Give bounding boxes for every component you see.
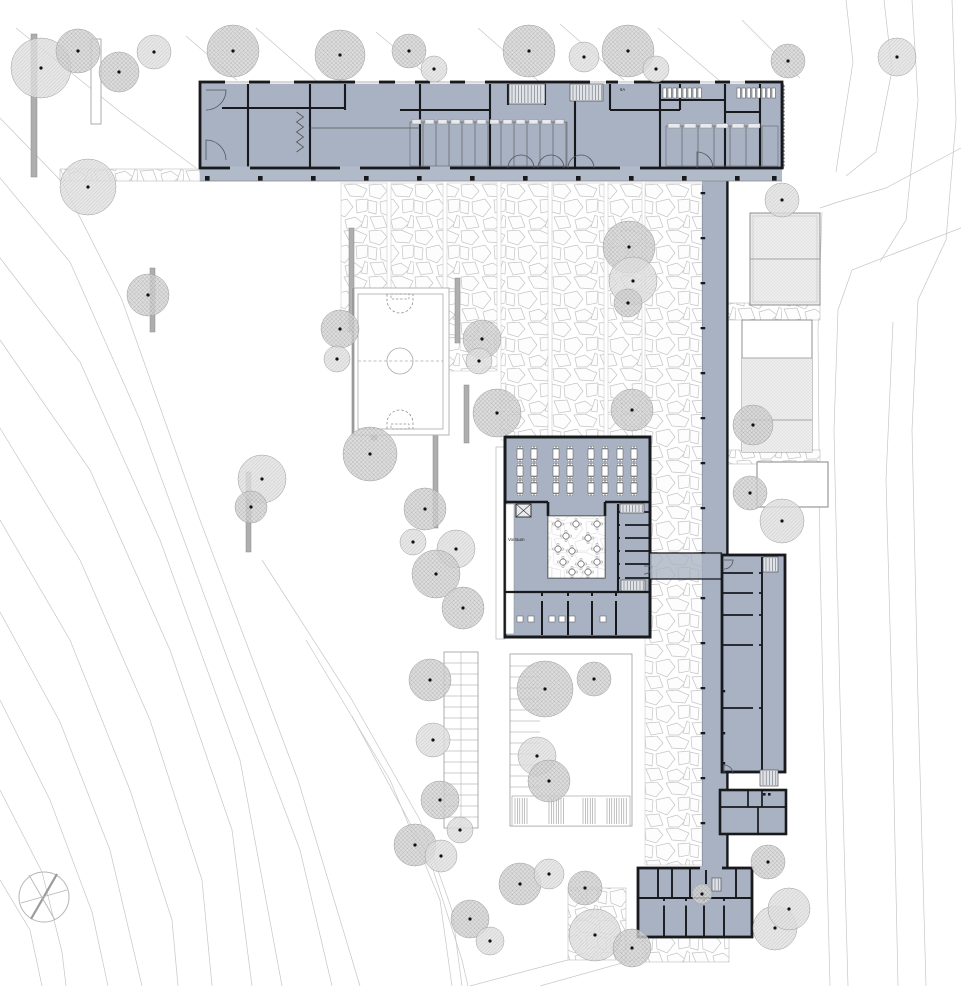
vorraum-corridor: [506, 504, 514, 634]
chair: [596, 544, 598, 546]
tree-trunk-dot: [626, 49, 629, 52]
locker-cap: [555, 120, 564, 125]
contour-line: [262, 560, 462, 986]
chair: [561, 535, 563, 537]
chair: [617, 460, 619, 462]
tree-trunk-dot: [454, 547, 457, 550]
veranda-post: [682, 176, 687, 181]
chair: [534, 494, 536, 496]
bridge-link: [650, 553, 722, 579]
corridor-post: [701, 372, 706, 374]
dining-table: [588, 466, 594, 476]
tree-trunk-dot: [547, 779, 550, 782]
locker-cap: [700, 124, 712, 129]
tree-trunk-dot: [439, 854, 442, 857]
chair: [553, 494, 555, 496]
round-table: [555, 546, 561, 552]
chair: [617, 446, 619, 448]
dining-table: [631, 466, 637, 476]
tree-trunk-dot: [488, 939, 491, 942]
dining-table: [531, 449, 537, 459]
chair: [571, 554, 573, 556]
door-gap: [541, 596, 543, 601]
chair: [520, 463, 522, 465]
locker-cap: [529, 120, 538, 125]
contour-line: [0, 258, 282, 986]
dining-table: [588, 449, 594, 459]
wall-nub: [721, 690, 725, 692]
steps-strip: [512, 796, 630, 826]
chair: [520, 477, 522, 479]
wc-fixture: [752, 88, 755, 98]
contour-line: [818, 212, 830, 986]
wall-nub: [721, 762, 725, 764]
veranda-post: [735, 176, 740, 181]
chair: [561, 548, 563, 550]
locker-cap: [477, 120, 486, 125]
chair: [556, 460, 558, 462]
chair: [531, 477, 533, 479]
tree-trunk-dot: [249, 505, 252, 508]
chair: [596, 519, 598, 521]
corridor-post: [701, 462, 706, 464]
tree-trunk-dot: [146, 293, 149, 296]
chair: [557, 519, 559, 521]
corridor-post: [701, 192, 706, 194]
chair: [588, 446, 590, 448]
door-gap: [685, 901, 687, 906]
dining-table: [531, 483, 537, 493]
chair: [567, 463, 569, 465]
chair: [634, 463, 636, 465]
corridor-post: [701, 237, 706, 239]
tree-trunk-dot: [527, 49, 530, 52]
chair: [575, 550, 577, 552]
chair: [557, 527, 559, 529]
chair: [605, 446, 607, 448]
chair: [634, 480, 636, 482]
chair: [602, 477, 604, 479]
tree-trunk-dot: [495, 411, 498, 414]
locker-cap: [451, 120, 460, 125]
east-annex: [720, 790, 786, 834]
chair: [602, 480, 604, 482]
chair: [570, 480, 572, 482]
chair: [534, 446, 536, 448]
basketball-court: [352, 288, 449, 435]
chair: [570, 460, 572, 462]
tree-trunk-dot: [773, 926, 776, 929]
corridor-post: [701, 732, 706, 734]
chair: [602, 494, 604, 496]
wc-fixture: [757, 88, 760, 98]
chair: [571, 523, 573, 525]
wall-nub: [721, 732, 725, 734]
corridor-post: [701, 822, 706, 824]
contour-line: [0, 428, 212, 986]
chair: [557, 544, 559, 546]
corridor-post: [701, 282, 706, 284]
chair: [567, 494, 569, 496]
chair: [553, 523, 555, 525]
chair: [587, 575, 589, 577]
door-gap: [620, 537, 625, 539]
locker-cap: [490, 120, 499, 125]
chair: [569, 535, 571, 537]
chair: [571, 546, 573, 548]
tree-trunk-dot: [751, 423, 754, 426]
chair: [553, 548, 555, 550]
vorraum-label: Vorraum: [508, 537, 525, 542]
stair: [509, 84, 545, 104]
chair: [584, 563, 586, 565]
tree-trunk-dot: [335, 357, 338, 360]
dining-table: [602, 483, 608, 493]
chair: [534, 463, 536, 465]
small-table: [528, 616, 534, 622]
chair: [558, 561, 560, 563]
wc-fixture: [693, 88, 696, 98]
chair: [596, 557, 598, 559]
locker-cap: [748, 124, 760, 129]
door-gap: [615, 596, 617, 601]
locker-cap: [425, 120, 434, 125]
tree-trunk-dot: [480, 337, 483, 340]
veranda-post: [470, 176, 475, 181]
dining-table: [517, 466, 523, 476]
chair: [588, 494, 590, 496]
chair: [520, 446, 522, 448]
dining-table: [617, 483, 623, 493]
tree-trunk-dot: [423, 507, 426, 510]
tree-trunk-dot: [428, 678, 431, 681]
tree-trunk-dot: [654, 67, 657, 70]
dining-table: [567, 483, 573, 493]
dining-table: [588, 483, 594, 493]
chair: [631, 480, 633, 482]
chair: [587, 533, 589, 535]
door-gap: [753, 592, 759, 594]
veranda-post: [364, 176, 369, 181]
chair: [575, 519, 577, 521]
round-table: [585, 535, 591, 541]
tree-trunk-dot: [368, 452, 371, 455]
small-table: [549, 616, 555, 622]
locker-cap: [684, 124, 696, 129]
locker-cap: [464, 120, 473, 125]
wc-fixture: [688, 88, 691, 98]
contour-line: [846, 0, 892, 176]
chair: [556, 480, 558, 482]
contour-line: [0, 340, 252, 986]
chair: [553, 477, 555, 479]
chair: [567, 480, 569, 482]
round-table: [585, 569, 591, 575]
tree-trunk-dot: [407, 49, 410, 52]
veranda-post: [258, 176, 263, 181]
tree-trunk-dot: [592, 677, 595, 680]
chair: [556, 446, 558, 448]
chair: [517, 460, 519, 462]
round-table: [578, 561, 584, 567]
round-table: [563, 533, 569, 539]
tree-trunk-dot: [631, 279, 634, 282]
tree-trunk-dot: [431, 738, 434, 741]
tree-trunk-dot: [477, 359, 480, 362]
round-table: [573, 521, 579, 527]
tree-trunk-dot: [780, 519, 783, 522]
locker-cap: [438, 120, 447, 125]
chair: [591, 463, 593, 465]
round-table: [569, 548, 575, 554]
wc-fixture: [772, 88, 775, 98]
corridor-post: [701, 687, 706, 689]
tree-trunk-dot: [626, 301, 629, 304]
dining-table: [517, 483, 523, 493]
tree-trunk-dot: [593, 933, 596, 936]
chair: [591, 571, 593, 573]
contour-line: [0, 612, 142, 986]
fixture: [763, 793, 766, 796]
chair: [580, 559, 582, 561]
veranda-post: [629, 176, 634, 181]
tree-trunk-dot: [411, 540, 414, 543]
chair: [565, 531, 567, 533]
corridor-post: [701, 642, 706, 644]
chair: [517, 463, 519, 465]
chair: [605, 477, 607, 479]
tree-trunk-dot: [86, 185, 89, 188]
chair: [634, 446, 636, 448]
wc-fixture: [737, 88, 740, 98]
wc-fixture: [663, 88, 666, 98]
chair: [634, 494, 636, 496]
chair: [631, 463, 633, 465]
chair: [553, 460, 555, 462]
chair: [600, 523, 602, 525]
chair: [531, 446, 533, 448]
door-gap: [753, 572, 759, 574]
stone-paving-patch: [645, 938, 729, 962]
chair: [575, 571, 577, 573]
tree-trunk-dot: [582, 55, 585, 58]
chair: [556, 477, 558, 479]
chair: [567, 477, 569, 479]
chair: [620, 463, 622, 465]
chair: [556, 463, 558, 465]
chair: [570, 446, 572, 448]
contour-line: [0, 700, 108, 986]
chair: [567, 460, 569, 462]
tree-trunk-dot: [786, 59, 789, 62]
wc-fixture: [678, 88, 681, 98]
door-gap: [620, 524, 625, 526]
chair: [617, 480, 619, 482]
door-gap: [620, 563, 625, 565]
chair: [517, 446, 519, 448]
wc-fixture: [767, 88, 770, 98]
contour-line: [834, 228, 961, 986]
stone-paving-band: [552, 183, 604, 440]
veranda-post: [772, 176, 777, 181]
stair: [570, 84, 603, 101]
site-plan-svg: 6AVorraum: [0, 0, 961, 986]
tree-trunk-dot: [766, 860, 769, 863]
tree-trunk-dot: [338, 327, 341, 330]
chair: [531, 494, 533, 496]
dining-table: [553, 449, 559, 459]
contour-line: [820, 148, 961, 208]
tree-trunk-dot: [39, 66, 42, 69]
stair: [760, 770, 778, 786]
dining-table: [553, 466, 559, 476]
tree-trunk-dot: [231, 49, 234, 52]
chair: [631, 477, 633, 479]
dining-table: [531, 466, 537, 476]
stair: [620, 504, 644, 513]
chair: [605, 494, 607, 496]
tree-trunk-dot: [468, 917, 471, 920]
chair: [571, 575, 573, 577]
door-gap: [753, 644, 759, 646]
chair: [592, 548, 594, 550]
chair: [553, 463, 555, 465]
chair: [562, 565, 564, 567]
dining-table: [567, 466, 573, 476]
tree-trunk-dot: [438, 798, 441, 801]
corridor-entry: [700, 866, 722, 870]
door-gap: [663, 901, 665, 906]
chair: [565, 539, 567, 541]
chair: [587, 541, 589, 543]
tree-trunk-dot: [627, 245, 630, 248]
chair: [517, 494, 519, 496]
chair: [587, 567, 589, 569]
chair: [602, 463, 604, 465]
tree-trunk-dot: [432, 67, 435, 70]
tree-trunk-dot: [748, 491, 751, 494]
tree-trunk-dot: [895, 55, 898, 58]
chair: [567, 571, 569, 573]
chair: [605, 463, 607, 465]
dining-table: [631, 449, 637, 459]
door-gap: [340, 166, 360, 169]
tree-trunk-dot: [700, 892, 703, 895]
stair: [712, 878, 721, 891]
wc-fixture: [668, 88, 671, 98]
locker-cap: [716, 124, 728, 129]
tree-trunk-dot: [535, 754, 538, 757]
door-gap: [230, 166, 250, 169]
chair: [588, 480, 590, 482]
chair: [576, 563, 578, 565]
corridor-post: [701, 507, 706, 509]
contour-line: [836, 0, 853, 172]
door-gap: [430, 166, 450, 169]
veranda-post: [417, 176, 422, 181]
contour-line: [912, 0, 956, 986]
chair: [591, 460, 593, 462]
chair: [596, 552, 598, 554]
dining-table: [553, 483, 559, 493]
chair: [600, 561, 602, 563]
chair: [583, 537, 585, 539]
chair: [617, 477, 619, 479]
contour-line: [0, 118, 360, 986]
tree-trunk-dot: [461, 606, 464, 609]
chair: [567, 446, 569, 448]
corridor-post: [701, 597, 706, 599]
wc-fixture: [762, 88, 765, 98]
chair: [591, 494, 593, 496]
tree-trunk-dot: [780, 198, 783, 201]
chair: [556, 494, 558, 496]
tree-trunk-dot: [630, 946, 633, 949]
wc-fixture: [698, 88, 701, 98]
chair: [553, 480, 555, 482]
chair: [591, 446, 593, 448]
door-gap: [620, 577, 625, 579]
locker-cap: [516, 120, 525, 125]
tree-trunk-dot: [413, 843, 416, 846]
wc-fixture: [683, 88, 686, 98]
chair: [600, 548, 602, 550]
tree-trunk-dot: [434, 572, 437, 575]
door-gap: [753, 614, 759, 616]
chair: [620, 446, 622, 448]
chair: [531, 463, 533, 465]
locker-cap: [542, 120, 551, 125]
chair: [620, 460, 622, 462]
locker-cap: [503, 120, 512, 125]
top-building-veranda: [200, 168, 782, 181]
contour-line: [0, 880, 42, 986]
chair: [520, 494, 522, 496]
stone-paving-patch: [728, 303, 820, 320]
chair: [605, 460, 607, 462]
chair: [570, 494, 572, 496]
chair: [557, 552, 559, 554]
small-table: [559, 616, 565, 622]
chair: [567, 550, 569, 552]
corridor-post: [701, 327, 706, 329]
corridor-post: [701, 417, 706, 419]
tree-trunk-dot: [76, 49, 79, 52]
round-table: [594, 559, 600, 565]
dining-table: [602, 449, 608, 459]
lower-terrace: [757, 462, 828, 507]
dining-table: [517, 449, 523, 459]
veranda-post: [205, 176, 210, 181]
door-gap: [620, 550, 625, 552]
room-label: 6A: [620, 87, 625, 92]
site-wall: [464, 385, 469, 443]
chair: [588, 460, 590, 462]
chair: [580, 567, 582, 569]
round-table: [560, 559, 566, 565]
dining-table: [567, 449, 573, 459]
chair: [591, 477, 593, 479]
chair: [634, 460, 636, 462]
chair: [588, 477, 590, 479]
chair: [596, 565, 598, 567]
small-table: [600, 616, 606, 622]
veranda-post: [311, 176, 316, 181]
chair: [553, 446, 555, 448]
chair: [520, 480, 522, 482]
chair: [571, 567, 573, 569]
chair: [570, 477, 572, 479]
